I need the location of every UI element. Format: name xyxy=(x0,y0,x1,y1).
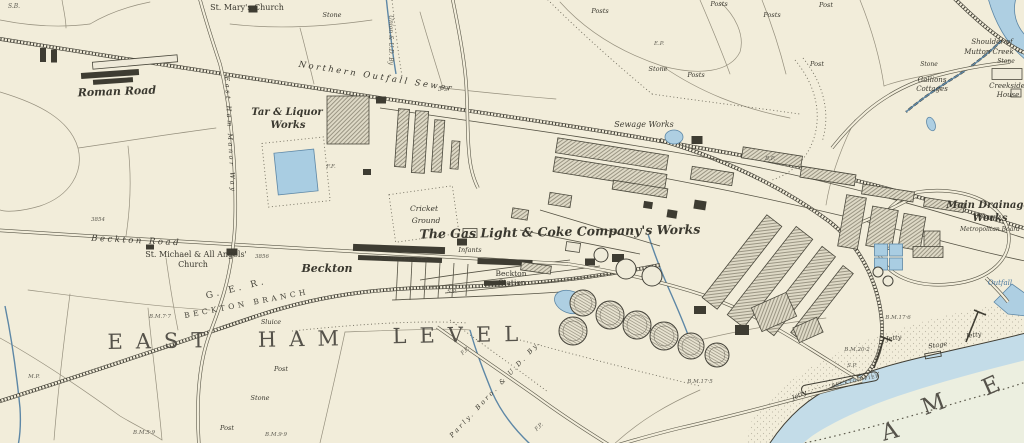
map-label: 5·9 xyxy=(438,85,448,93)
map-label: S.P. xyxy=(847,363,857,369)
building xyxy=(376,97,386,104)
map-label: Cottages xyxy=(916,85,948,93)
building xyxy=(363,169,371,175)
map-label: Shoulder of xyxy=(971,38,1014,46)
map-label: Ground xyxy=(412,216,441,225)
pond xyxy=(665,130,683,144)
building xyxy=(643,201,653,209)
map-label: House xyxy=(996,91,1020,99)
map-label: LEVEL xyxy=(392,322,531,348)
map-label: St. Michael & All Angels' xyxy=(145,250,247,259)
building xyxy=(511,208,528,220)
map-label: Post xyxy=(818,1,833,9)
building xyxy=(913,247,943,258)
filter-bed xyxy=(890,244,903,256)
map-label: Creekside xyxy=(989,82,1024,90)
map-label: St. Mary's Church xyxy=(210,3,284,12)
map-label: Tar & Liquor xyxy=(251,107,323,118)
map-label: Posts xyxy=(686,71,705,79)
map-label: Stone xyxy=(250,394,269,402)
building xyxy=(992,69,1022,80)
building xyxy=(450,141,460,169)
map-label: B.M.17·6 xyxy=(884,315,911,321)
map-label: EAST xyxy=(107,328,218,354)
map-label: Main Drainage xyxy=(945,200,1024,211)
map-label: Infants xyxy=(457,246,482,254)
historic-map-canvas: S.B.St. Mary's ChurchStoneRoman RoadTar … xyxy=(0,0,1024,443)
map-label: Union & U.D. By xyxy=(387,15,394,66)
gas-holder xyxy=(594,248,608,262)
map-label: Metropolitan Board xyxy=(959,226,1020,233)
building xyxy=(692,136,703,144)
map-label: Posts xyxy=(709,0,728,8)
map-label: Post xyxy=(273,365,288,373)
map-label: 3854 xyxy=(91,217,105,223)
gas-holder xyxy=(883,276,893,286)
filter-bed xyxy=(890,258,903,270)
building xyxy=(51,50,57,63)
map-viewport[interactable]: S.B.St. Mary's ChurchStoneRoman RoadTar … xyxy=(0,0,1024,443)
map-label: Station xyxy=(498,278,526,287)
building xyxy=(327,96,369,144)
building xyxy=(40,48,46,62)
map-label: Mutton Creek xyxy=(963,48,1013,56)
map-label: Works xyxy=(973,213,1008,224)
map-label: Post xyxy=(809,60,824,68)
map-label: B.P. xyxy=(764,156,775,162)
map-label: Beckton xyxy=(495,269,526,278)
building xyxy=(565,242,580,253)
building xyxy=(694,306,706,314)
map-label: S.B. xyxy=(8,3,20,10)
building xyxy=(666,209,677,218)
map-label: E.P. xyxy=(653,41,664,47)
map-label: B.M.5·9 xyxy=(132,430,155,436)
map-label: Stone xyxy=(997,58,1015,65)
map-label: Beckton xyxy=(300,262,352,275)
map-label: Roman Road xyxy=(76,84,156,100)
map-label: Posts xyxy=(762,11,781,19)
map-label: 3856 xyxy=(255,254,269,260)
map-label: F.F. xyxy=(325,164,336,170)
map-label: S.P. xyxy=(447,289,457,295)
map-label: Stone xyxy=(920,61,938,68)
gas-holder xyxy=(642,266,662,286)
map-label: B.M.17·5 xyxy=(686,379,713,385)
map-label: Post xyxy=(219,424,234,432)
map-label: Church xyxy=(178,260,208,269)
filter-bed xyxy=(875,244,888,256)
map-label: Gallions xyxy=(918,76,947,84)
gas-holder xyxy=(873,267,883,277)
map-label: Sluice xyxy=(261,318,281,326)
map-label: HAM xyxy=(258,326,352,352)
map-label: M.P. xyxy=(27,374,40,380)
map-label: Stone xyxy=(322,11,341,19)
filter-bed xyxy=(274,149,318,195)
gas-holder xyxy=(616,259,636,279)
map-label: Stone xyxy=(648,65,667,73)
map-label: Sewage Works xyxy=(614,120,674,129)
map-label: B.M.20·2 xyxy=(843,347,870,353)
map-label: Works xyxy=(271,120,306,131)
map-label: Cricket xyxy=(410,204,439,213)
building xyxy=(693,200,706,211)
gas-holder xyxy=(705,343,729,367)
map-label: B.M.9·9 xyxy=(264,432,287,438)
map-label: Posts xyxy=(590,7,609,15)
building xyxy=(585,259,595,266)
map-label: B.M.7·7 xyxy=(148,314,171,320)
building xyxy=(735,325,749,335)
map-label: Outfall xyxy=(988,279,1012,287)
